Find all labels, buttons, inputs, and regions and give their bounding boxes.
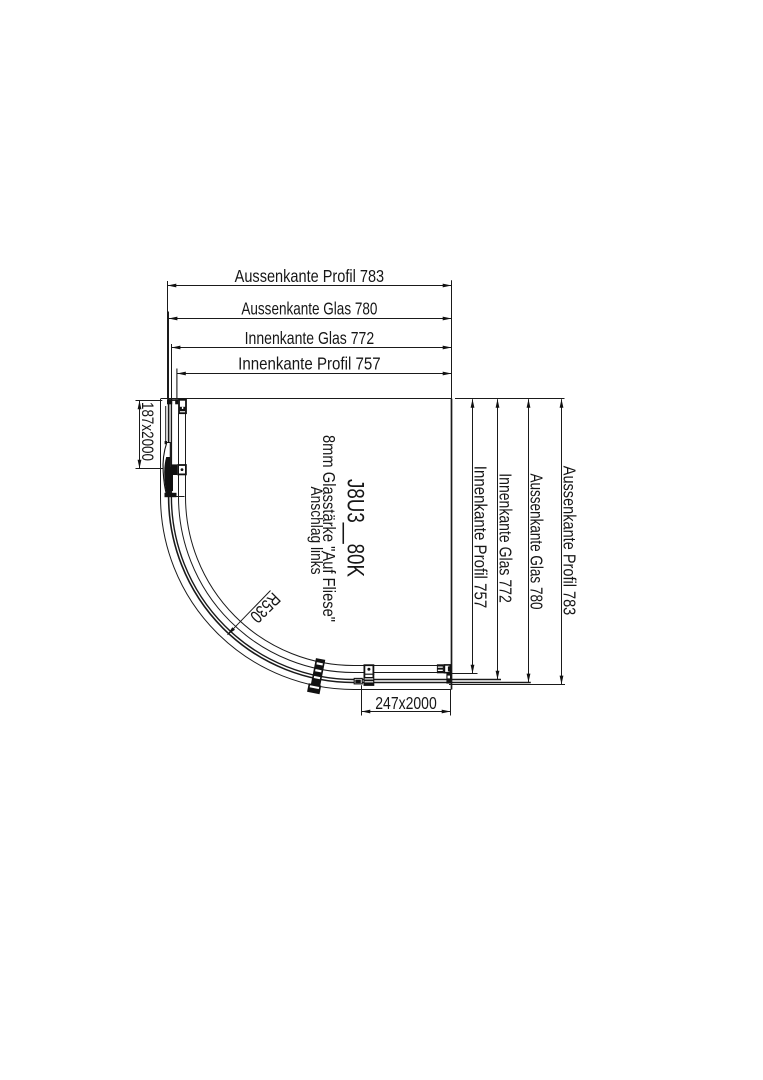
svg-text:J8U3__80K: J8U3__80K <box>342 479 369 577</box>
svg-text:Aussenkante Glas 780: Aussenkante Glas 780 <box>527 474 547 610</box>
svg-text:Aussenkante Profil 783: Aussenkante Profil 783 <box>560 466 580 616</box>
svg-text:247x2000: 247x2000 <box>375 693 437 713</box>
svg-text:Innenkante Glas 772: Innenkante Glas 772 <box>245 328 375 348</box>
svg-text:Anschlag links: Anschlag links <box>307 487 326 575</box>
svg-text:Aussenkante Profil 783: Aussenkante Profil 783 <box>235 266 385 286</box>
svg-text:Aussenkante Glas 780: Aussenkante Glas 780 <box>241 299 377 319</box>
svg-text:Innenkante Profil 757: Innenkante Profil 757 <box>238 353 381 373</box>
svg-text:R530: R530 <box>246 589 284 627</box>
svg-text:Innenkante Profil 757: Innenkante Profil 757 <box>471 466 491 609</box>
svg-text:Innenkante Glas 772: Innenkante Glas 772 <box>496 473 516 603</box>
svg-text:187x2000: 187x2000 <box>138 402 156 461</box>
